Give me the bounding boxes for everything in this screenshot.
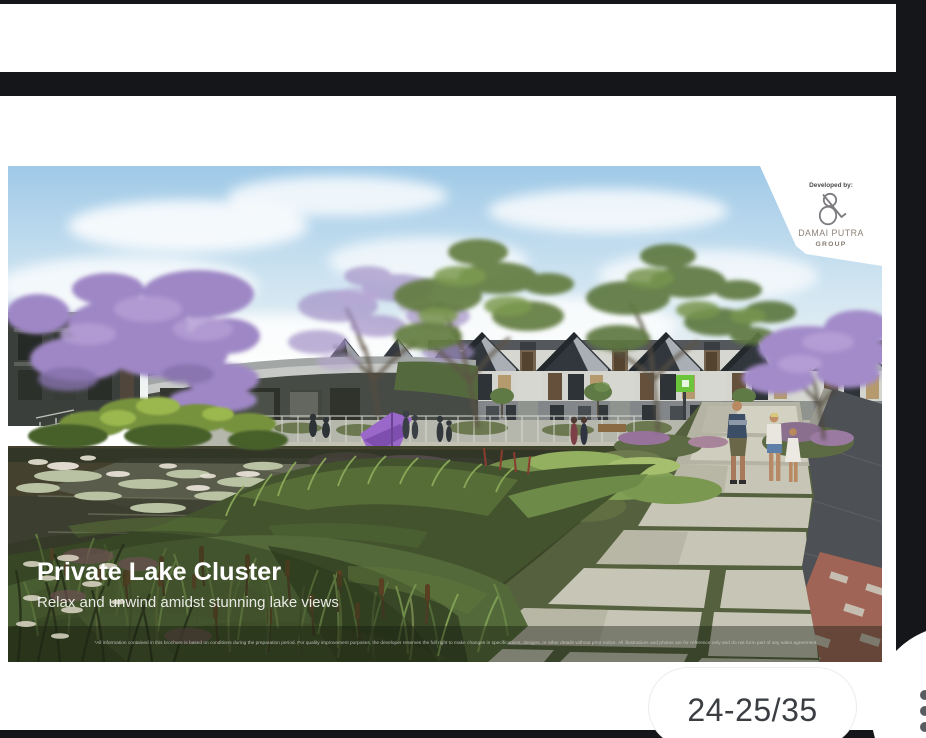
svg-text:Relax and unwind amidst stunni: Relax and unwind amidst stunning lake vi…: [37, 594, 339, 611]
svg-text:Developed by:: Developed by:: [809, 182, 853, 189]
svg-text:*All information contained in: *All information contained in this broch…: [94, 640, 817, 646]
svg-text:DAMAI PUTRA: DAMAI PUTRA: [798, 228, 864, 238]
svg-text:GROUP: GROUP: [816, 241, 847, 248]
svg-text:Private Lake Cluster: Private Lake Cluster: [37, 558, 281, 586]
